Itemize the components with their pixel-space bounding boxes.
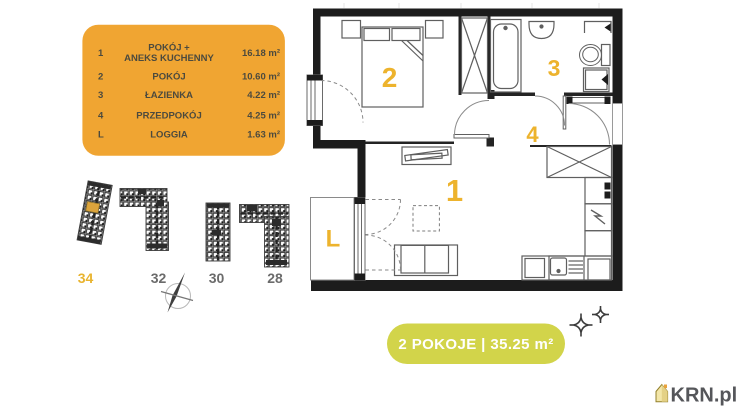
svg-text:16.18 m²: 16.18 m²	[242, 48, 280, 59]
svg-text:L: L	[98, 130, 104, 141]
svg-text:ŁAZIENKA: ŁAZIENKA	[145, 90, 193, 101]
svg-text:3: 3	[98, 90, 103, 101]
svg-text:30: 30	[209, 270, 225, 286]
svg-text:4.22 m²: 4.22 m²	[247, 90, 280, 101]
svg-text:ANEKS KUCHENNY: ANEKS KUCHENNY	[124, 53, 214, 64]
svg-text:3: 3	[548, 55, 561, 81]
svg-text:1: 1	[446, 173, 463, 208]
svg-text:2 POKOJE | 35.25 m²: 2 POKOJE | 35.25 m²	[398, 336, 553, 353]
svg-text:POKÓJ: POKÓJ	[152, 71, 185, 83]
svg-text:28: 28	[267, 270, 283, 286]
svg-text:4: 4	[98, 110, 104, 121]
svg-text:32: 32	[151, 270, 167, 286]
svg-text:KRN.pl: KRN.pl	[671, 385, 738, 407]
svg-text:4: 4	[526, 122, 539, 147]
svg-text:1: 1	[98, 48, 104, 59]
svg-text:2: 2	[98, 72, 103, 83]
svg-text:34: 34	[78, 270, 94, 286]
svg-text:1.63 m²: 1.63 m²	[247, 130, 280, 141]
svg-text:10.60 m²: 10.60 m²	[242, 72, 280, 83]
svg-text:L: L	[326, 226, 341, 253]
svg-text:LOGGIA: LOGGIA	[150, 130, 188, 141]
svg-text:4.25 m²: 4.25 m²	[247, 110, 280, 121]
svg-text:PRZEDPOKÓJ: PRZEDPOKÓJ	[136, 109, 201, 121]
svg-text:2: 2	[382, 62, 398, 93]
svg-text:POKÓJ +: POKÓJ +	[148, 42, 190, 54]
